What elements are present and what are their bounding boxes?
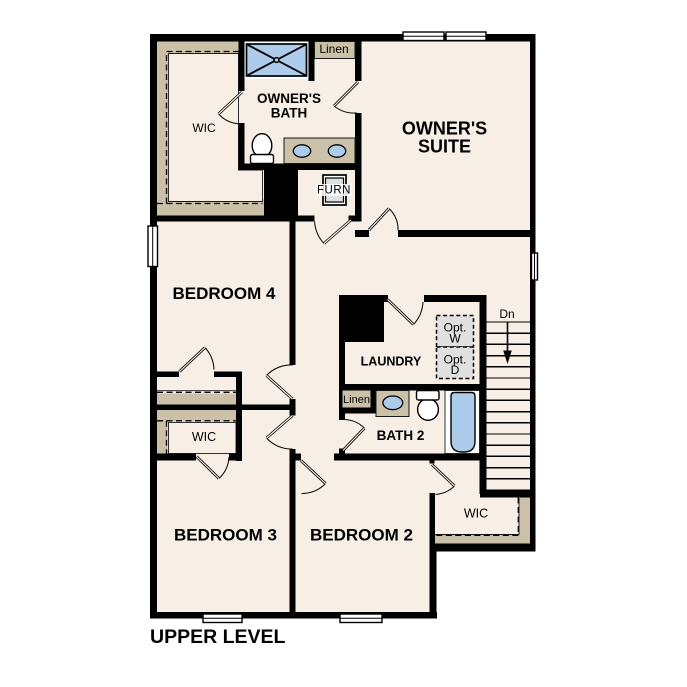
svg-text:OWNER'S: OWNER'S [402, 119, 487, 139]
svg-text:Dn: Dn [499, 307, 514, 321]
svg-text:BEDROOM 3: BEDROOM 3 [174, 526, 277, 545]
svg-text:BEDROOM 2: BEDROOM 2 [310, 526, 413, 545]
svg-text:FURN: FURN [317, 185, 351, 197]
svg-text:BATH 2: BATH 2 [377, 428, 425, 443]
svg-text:WIC: WIC [192, 121, 216, 135]
svg-text:Linen: Linen [319, 42, 348, 56]
svg-text:SUITE: SUITE [418, 137, 471, 157]
svg-text:WIC: WIC [464, 507, 488, 521]
svg-text:LAUNDRY: LAUNDRY [361, 355, 422, 369]
svg-text:WIC: WIC [192, 430, 216, 444]
svg-text:BEDROOM 4: BEDROOM 4 [173, 284, 277, 303]
svg-text:D: D [451, 363, 460, 377]
svg-text:W: W [449, 332, 461, 346]
svg-text:OWNER'S: OWNER'S [257, 91, 321, 106]
svg-text:Linen: Linen [343, 394, 370, 406]
svg-text:BATH: BATH [271, 106, 308, 121]
svg-text:UPPER LEVEL: UPPER LEVEL [150, 626, 286, 648]
